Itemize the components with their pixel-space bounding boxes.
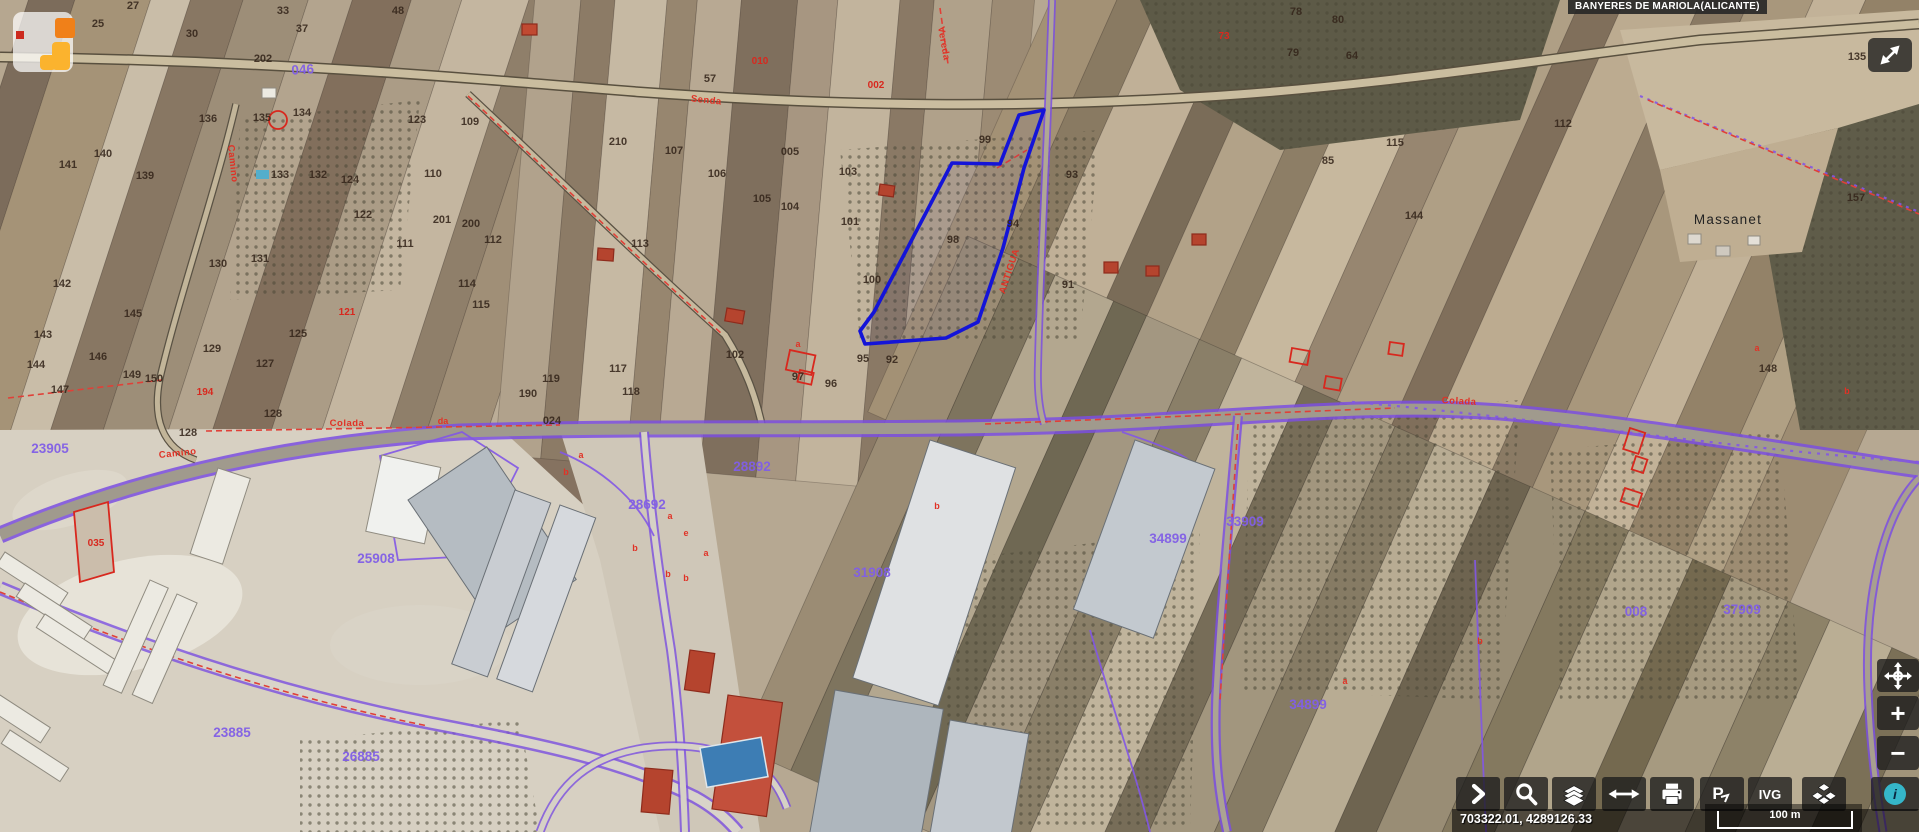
parcel-numbers-item: 104	[781, 201, 800, 213]
parcel-numbers-item: 33	[277, 5, 289, 17]
parcel-numbers-item: 106	[708, 168, 726, 180]
logo-amber-foot	[40, 55, 56, 70]
parcel-numbers-item: 190	[519, 388, 537, 400]
logo-orange-square	[55, 18, 75, 38]
cursor-coordinates: 703322.01, 4289126.33	[1460, 812, 1592, 826]
red-numbers-item: 73	[1218, 31, 1230, 42]
toponym-labels: Massanet	[1694, 212, 1762, 227]
zone-labels-item: 26885	[342, 749, 380, 764]
search-button[interactable]	[1504, 777, 1548, 811]
parcel-numbers-item: 131	[251, 253, 269, 265]
double-arrow-icon	[1607, 783, 1641, 805]
parcel-numbers-item: 125	[289, 328, 307, 340]
parcel-numbers-item: 145	[124, 308, 142, 320]
parcel-numbers-item: 115	[1386, 137, 1404, 149]
zone-labels-item: 23905	[31, 441, 69, 456]
parcel-numbers-item: 135	[1848, 51, 1866, 63]
parcel-numbers-item: 37	[296, 23, 308, 35]
parcel-numbers-item: 25	[92, 18, 104, 30]
catastro-logo[interactable]	[13, 12, 73, 72]
print-button[interactable]	[1650, 777, 1694, 811]
marker-letters-item: da	[438, 416, 449, 426]
parcel-numbers-item: 142	[53, 278, 71, 290]
parcel-numbers-item: 96	[825, 378, 837, 390]
parcel-numbers-item: 94	[1007, 218, 1020, 230]
parcel-numbers-item: 200	[462, 218, 480, 230]
red-numbers-item: 002	[868, 80, 885, 91]
zone-labels-item: 23885	[213, 725, 251, 740]
map-viewer-window: 2527303337482021361351341411401391421451…	[0, 0, 1919, 832]
toponym-layer-item: Massanet	[1694, 212, 1762, 227]
parcel-numbers-item: 128	[179, 427, 197, 439]
parcel-numbers-item: 85	[1322, 155, 1334, 167]
parcel-numbers-item: 148	[1759, 363, 1777, 375]
zone-labels-item: 34899	[1149, 531, 1187, 546]
road-labels-item: Colada	[330, 418, 365, 429]
parcel-numbers-item: 98	[947, 234, 959, 246]
parcel-numbers-item: 115	[472, 299, 490, 311]
expand-arrows-icon	[1875, 42, 1905, 68]
marker-letters-item: b	[665, 569, 671, 579]
marker-letters-item: e	[683, 528, 688, 538]
parcel-numbers-item: 111	[396, 238, 413, 250]
parcel-numbers-item: 78	[1290, 6, 1302, 18]
open-panel-button[interactable]	[1456, 777, 1500, 811]
parcel-numbers-item: 27	[127, 0, 139, 12]
marker-letters-item: b	[1477, 636, 1483, 646]
parcel-numbers-item: 48	[392, 5, 404, 17]
zone-labels-item: 28692	[628, 497, 666, 512]
parcel-numbers-item: 118	[622, 386, 640, 398]
parcel-numbers-item: 129	[203, 343, 221, 355]
parcel-numbers-item: 100	[863, 274, 881, 286]
red-numbers-item: 010	[752, 56, 769, 67]
measure-button[interactable]	[1602, 777, 1646, 811]
layers-icon	[1559, 781, 1589, 807]
scale-label: 100 m	[1719, 809, 1851, 821]
logo-red-square	[16, 31, 24, 39]
parcel-numbers-item: 30	[186, 28, 198, 40]
zone-labels-item: 33909	[1226, 514, 1264, 529]
zone-labels-item: 37909	[1723, 602, 1761, 617]
pool	[256, 170, 269, 179]
marker-letters-item: b	[683, 573, 689, 583]
marker-letters-item: b	[563, 467, 569, 477]
parcel-numbers-item: 132	[309, 169, 327, 181]
parcel-numbers-item: 146	[89, 351, 107, 363]
parcel-numbers-item: 150	[145, 373, 163, 385]
parcel-numbers-item: 80	[1332, 14, 1344, 26]
ivg-label: IVG	[1759, 787, 1781, 802]
parcel-numbers-item: 91	[1062, 279, 1074, 291]
zone-labels-item: 046	[291, 61, 315, 78]
magnifier-icon	[1513, 781, 1539, 807]
zone-labels-item: 008	[1625, 604, 1648, 619]
parcel-numbers-item: 93	[1066, 169, 1078, 181]
parcel-numbers-item: 144	[1405, 210, 1424, 222]
parcel-numbers-item: 140	[94, 148, 112, 160]
zoom-out-button[interactable]: −	[1877, 736, 1919, 770]
fullscreen-button[interactable]	[1868, 38, 1912, 72]
zone-labels-item: 25908	[357, 551, 395, 566]
parcel-numbers-item: 127	[256, 358, 274, 370]
parcel-numbers-item: 64	[1346, 50, 1359, 62]
marker-letters-item: b	[1844, 386, 1850, 396]
status-bar: 703322.01, 4289126.33 100 m	[1452, 809, 1919, 832]
info-icon: i	[1883, 782, 1907, 806]
red-numbers-item: 035	[88, 538, 105, 549]
parcel-numbers-item: 113	[631, 238, 649, 250]
map-canvas[interactable]: 2527303337482021361351341411401391421451…	[0, 0, 1919, 832]
parcel-numbers-item: 124	[341, 174, 360, 186]
parcel-numbers-item: 128	[264, 408, 282, 420]
parcel-numbers-item: 201	[433, 214, 451, 226]
parcel-numbers-item: 143	[34, 329, 52, 341]
parcel-numbers-item: 202	[254, 53, 272, 65]
parcel-numbers-item: 139	[136, 170, 154, 182]
red-numbers-item: 194	[197, 387, 214, 398]
chevron-right-icon	[1468, 783, 1488, 805]
parcel-numbers-item: 117	[609, 363, 627, 375]
parcel-numbers-item: 136	[199, 113, 217, 125]
parcel-numbers-item: 112	[484, 234, 502, 246]
zoom-in-button[interactable]: +	[1877, 696, 1919, 730]
parcel-numbers-item: 144	[27, 359, 46, 371]
parcel-numbers-item: 105	[753, 193, 771, 205]
layers-button[interactable]	[1552, 777, 1596, 811]
parcel-numbers-item: 135	[253, 112, 271, 124]
pan-button[interactable]	[1877, 659, 1919, 692]
parcel-numbers-item: 141	[59, 159, 77, 171]
parcel-numbers-item: 130	[209, 258, 227, 270]
parcel-numbers-item: 119	[542, 373, 560, 385]
road-labels-item: Colada	[1442, 395, 1477, 408]
red-numbers-item: 121	[339, 307, 356, 318]
parcel-numbers-item: 112	[1554, 118, 1572, 130]
parcel-numbers-item: 95	[857, 353, 869, 365]
pan-cross-icon	[1884, 662, 1912, 690]
parcel-numbers-item: 005	[781, 146, 799, 158]
parcel-numbers-item: 147	[51, 384, 69, 396]
parcel-numbers-item: 102	[726, 349, 744, 361]
info-button[interactable]: i	[1871, 777, 1919, 811]
scale-bar: 100 m	[1717, 811, 1853, 829]
parcel-numbers-item: 134	[293, 107, 312, 119]
parcel-numbers-item: 123	[408, 114, 426, 126]
scale-box: 100 m	[1705, 804, 1862, 832]
parcel-numbers-item: 103	[839, 166, 857, 178]
parcel-numbers-item: 149	[123, 369, 141, 381]
parcel-numbers-item: 114	[458, 278, 477, 290]
parcel-numbers-item: 57	[704, 73, 716, 85]
parcel-numbers-item: 107	[665, 145, 683, 157]
zone-labels-item: 28892	[733, 459, 771, 474]
parcel-numbers-item: 133	[271, 169, 289, 181]
zone-labels-item: 31908	[853, 565, 891, 580]
parcel-numbers-item: 101	[841, 216, 859, 228]
parcel-numbers-item: 110	[424, 168, 442, 180]
municipality-title: BANYERES DE MARIOLA(ALICANTE)	[1568, 0, 1767, 14]
printer-icon	[1658, 781, 1686, 807]
parcel-numbers-item: 122	[354, 209, 372, 221]
parcel-numbers-item: 92	[886, 354, 898, 366]
parcel-numbers-item: 157	[1847, 192, 1865, 204]
parcel-numbers-item: 97	[792, 371, 804, 383]
parcel-numbers-item: 99	[979, 134, 991, 146]
parcel-numbers-item: 024	[543, 415, 562, 427]
parcel-numbers-item: 79	[1287, 47, 1299, 59]
marker-letters-item: b	[934, 501, 940, 511]
zone-labels-item: 34899	[1289, 697, 1327, 712]
parcel-numbers-item: 109	[461, 116, 479, 128]
marker-letters-item: b	[632, 543, 638, 553]
parcel-numbers-item: 210	[609, 136, 627, 148]
